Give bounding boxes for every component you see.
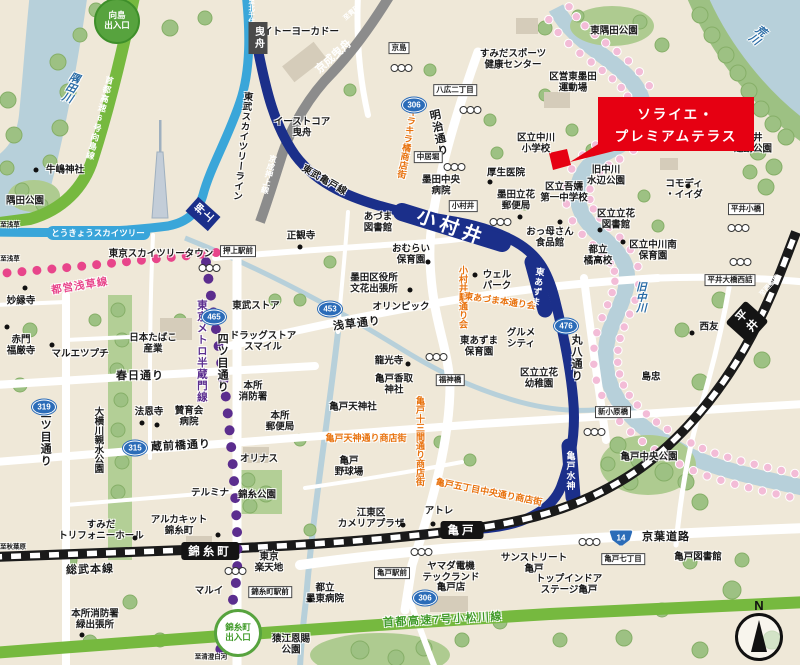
map-label: イトーヨーカドー: [263, 28, 339, 39]
map-label: ヤマダ電機テックランド亀戸店: [422, 562, 479, 594]
map-label: 亀戸天神通り商店街: [325, 433, 406, 443]
map-label: マルエツプチ: [51, 350, 108, 361]
poi-dot: [558, 220, 563, 225]
map-label: 至秋葉原: [0, 543, 26, 550]
poi-dot: [133, 536, 138, 541]
crossing-label: 中居堀: [414, 151, 443, 163]
map-label: 正観寺: [287, 232, 316, 243]
map-label: 区立中川小学校: [517, 133, 555, 154]
station-keisei-hikifune: 京成曳舟: [311, 35, 354, 76]
crossing-label: 新小原橋: [595, 406, 631, 418]
map-label: 日本たばこ産業: [129, 333, 177, 354]
map-label: 首都高速7号小松川線: [383, 611, 504, 630]
traffic-signal-icon: [226, 567, 247, 575]
map-label: 首都高速6号向島線: [84, 75, 114, 162]
map-label: 亀戸香取神社: [375, 374, 413, 395]
poi-dot: [431, 522, 436, 527]
poi-dot: [298, 245, 303, 250]
compass: N: [735, 598, 783, 660]
map-label: 妙縁寺: [7, 297, 36, 308]
traffic-signal-icon: [491, 218, 512, 226]
map-label: 至青砥: [342, 4, 361, 22]
map-label: 錦糸公園: [238, 491, 276, 502]
map-label: 牛嶋神社: [46, 166, 84, 177]
property-name-line2: プレミアムテラス: [615, 125, 738, 145]
route-badge-icon: 319: [33, 401, 55, 414]
poi-dot: [155, 423, 160, 428]
access-map: イトーヨーカドーイーストコア曳舟京成押上線東武スカイツリーライン東武亀戸線至北千…: [0, 0, 800, 665]
map-label: 至浅草: [0, 255, 20, 262]
map-label: すみだスポーツ健康センター: [480, 49, 546, 70]
property-name-box: ソライエ・ プレミアムテラス: [598, 97, 754, 151]
crossing-label: 小村井: [449, 200, 478, 212]
traffic-signal-icon: [445, 163, 466, 171]
map-label: 東あずま保育園: [460, 336, 498, 357]
map-label: 三ツ目通り: [39, 407, 51, 467]
traffic-signal-icon: [585, 428, 606, 436]
map-label: 本所消防署緑出張所: [71, 609, 119, 630]
kinshicho-entrance: 錦糸町出入口: [214, 609, 262, 657]
crossing-label: 平井大橋西詰: [705, 274, 756, 286]
station-hikifune: 曳舟: [249, 22, 268, 54]
map-label: 亀戸野球場: [335, 456, 364, 477]
map-label: 浅草通り: [332, 315, 381, 333]
station-kinshicho: 錦糸町: [181, 542, 239, 560]
mukojima-entrance: 向島出入口: [94, 0, 140, 44]
route-badge-icon: 453: [319, 303, 341, 316]
map-label: 四ツ目通り: [216, 333, 228, 393]
poi-dot: [308, 598, 313, 603]
map-label: 区立吾嬬第一中学校: [540, 182, 588, 203]
map-label: 京成押上線: [259, 154, 277, 195]
property-name-line1: ソライエ・: [637, 103, 714, 123]
traffic-signal-icon: [412, 548, 433, 556]
map-label: おっ母さん食品館: [526, 227, 574, 248]
map-label: サンストリート亀戸: [501, 553, 567, 574]
traffic-signal-icon: [580, 538, 601, 546]
station-higashi-azuma: 東あずま: [529, 266, 547, 307]
poi-dot: [690, 331, 695, 336]
compass-north-label: N: [735, 598, 783, 613]
map-label: 荒川: [746, 22, 768, 46]
map-label: オリナス: [240, 455, 278, 466]
map-label: 京葉道路: [642, 531, 690, 543]
map-label: ドラッグストアスマイル: [230, 331, 297, 352]
map-label: 赤門福厳寺: [7, 335, 36, 356]
map-label: 江東区カメリアプラザ: [338, 508, 405, 529]
map-label: 亀戸中央公園: [620, 453, 677, 464]
map-label: おむらい保育園: [392, 244, 430, 265]
map-label: 東あづま本通り会: [464, 291, 537, 311]
traffic-signal-icon: [729, 224, 750, 232]
route-badge-icon: 465: [203, 311, 225, 324]
map-label: 区立立花幼稚園: [520, 368, 558, 389]
poi-dot: [80, 633, 85, 638]
map-label: 東京スカイツリータウン: [109, 250, 214, 261]
poi-dot: [5, 325, 10, 330]
poi-dot: [216, 533, 221, 538]
map-label: 猿江恩賜公園: [272, 634, 310, 655]
map-label: 至浅草: [0, 221, 20, 228]
map-label: キラキラ橘商店街: [396, 107, 418, 180]
poi-dot: [621, 240, 626, 245]
map-label: 本所消防署: [239, 381, 268, 402]
poi-dot: [140, 421, 145, 426]
map-label: 蔵前橋通り: [151, 438, 212, 453]
poi-dot: [34, 168, 39, 173]
map-label: 区立中川南保育園: [629, 240, 677, 261]
map-label: 東武ストア: [232, 302, 280, 313]
map-label: 亀戸天神社: [329, 403, 377, 414]
traffic-signal-icon: [392, 64, 413, 72]
map-label: トップインドアステージ亀戸: [536, 574, 603, 595]
map-label: 賛育会病院: [175, 406, 204, 427]
traffic-signal-icon: [731, 258, 752, 266]
map-label: 春日通り: [116, 370, 164, 382]
crossing-label: 八広二丁目: [433, 84, 477, 96]
map-label: すみだトリフォニーホール: [58, 520, 144, 541]
map-label: 西友: [699, 323, 718, 334]
map-label: 墨田中央病院: [422, 175, 460, 196]
poi-dot: [598, 228, 603, 233]
map-label: 龍光寺: [375, 357, 404, 368]
map-label: 都営浅草線: [51, 277, 110, 298]
compass-ring: [735, 613, 783, 661]
map-label: 法恩寺: [135, 408, 164, 419]
map-label: アルカキット錦糸町: [151, 515, 208, 536]
map-label: 東武亀戸線: [300, 164, 349, 198]
crossing-label: 錦糸町駅前: [248, 586, 292, 598]
map-label: コモディ・イイダ: [665, 179, 703, 200]
map-label: アトレ: [425, 507, 454, 518]
route-badge-icon: 315: [124, 442, 146, 455]
map-label: テルミナ: [191, 489, 229, 500]
crossing-label: 亀戸七丁目: [601, 553, 645, 565]
route-badge-icon: 306: [403, 99, 425, 112]
poi-dot: [473, 273, 478, 278]
poi-dot: [408, 288, 413, 293]
route-badge-icon: 14: [609, 530, 633, 547]
crossing-label: 亀戸駅前: [374, 567, 410, 579]
station-oshiage: 押上: [185, 197, 220, 231]
map-label: 亀戸五丁目中央通り商店街: [435, 477, 543, 508]
map-label: 都立橘高校: [584, 245, 613, 266]
map-label: 亀戸十三間通り商店街: [415, 396, 425, 486]
map-label: マルイ: [195, 587, 224, 598]
crossing-label: 押上駅前: [220, 245, 256, 257]
route-badge-icon: 476: [555, 320, 577, 333]
map-label: 東隅田公園: [590, 27, 638, 38]
map-label: グルメシティ: [507, 328, 536, 349]
map-label: ウェルパーク: [483, 270, 512, 291]
map-label: 至清澄白河: [195, 653, 228, 660]
map-label: 亀戸図書館: [674, 553, 722, 564]
map-label: 区営東墨田運動場: [549, 72, 597, 93]
traffic-signal-icon: [200, 264, 221, 272]
map-label: 総武本線: [66, 563, 114, 577]
poi-dot: [686, 184, 691, 189]
map-label: 大横川親水公園: [92, 407, 103, 474]
map-label: 厚生医院: [487, 169, 525, 180]
traffic-signal-icon: [461, 106, 482, 114]
poi-dot: [406, 362, 411, 367]
map-label: 墨田立花郵便局: [497, 190, 535, 211]
map-label: 旧中川水辺公園: [587, 165, 625, 186]
map-label: 墨田区役所文花出張所: [350, 273, 398, 294]
map-label: 島忠: [641, 373, 660, 384]
crossing-label: 福神橋: [436, 374, 465, 386]
map-label: あづま図書館: [364, 212, 393, 233]
station-kameido-suijin: 亀戸水神: [565, 451, 578, 491]
station-kameido: 亀戸: [441, 521, 484, 539]
poi-dot: [426, 260, 431, 265]
map-label: 区立立花図書館: [597, 209, 635, 230]
map-label: 隅田川: [59, 70, 81, 104]
map-label: 至西船橋: [758, 274, 781, 298]
station-hirai: 平井: [725, 300, 768, 343]
traffic-signal-icon: [427, 353, 448, 361]
map-label: 旧中川: [634, 281, 646, 313]
crossing-label: 平井小橋: [728, 203, 764, 215]
map-label: イーストコア曳舟: [274, 117, 331, 138]
poi-dot: [488, 180, 493, 185]
map-label: 隅田公園: [6, 197, 44, 208]
poi-dot: [401, 523, 406, 528]
poi-dot: [518, 215, 523, 220]
compass-needle-icon: [751, 620, 767, 652]
map-label: 丸八通り: [570, 334, 582, 382]
map-label: 本所郵便局: [266, 411, 295, 432]
route-badge-icon: 306: [414, 592, 436, 605]
poi-dot: [50, 343, 55, 348]
map-label: オリンピック: [372, 303, 429, 314]
map-label: 至北千住: [246, 0, 253, 24]
map-label: 東武スカイツリーライン: [230, 91, 252, 202]
crossing-label: 京島: [389, 42, 410, 54]
station-tokyo-skytree: とうきょうスカイツリー: [46, 226, 150, 240]
poi-dot: [23, 286, 28, 291]
map-label: 東京楽天地: [255, 552, 284, 573]
